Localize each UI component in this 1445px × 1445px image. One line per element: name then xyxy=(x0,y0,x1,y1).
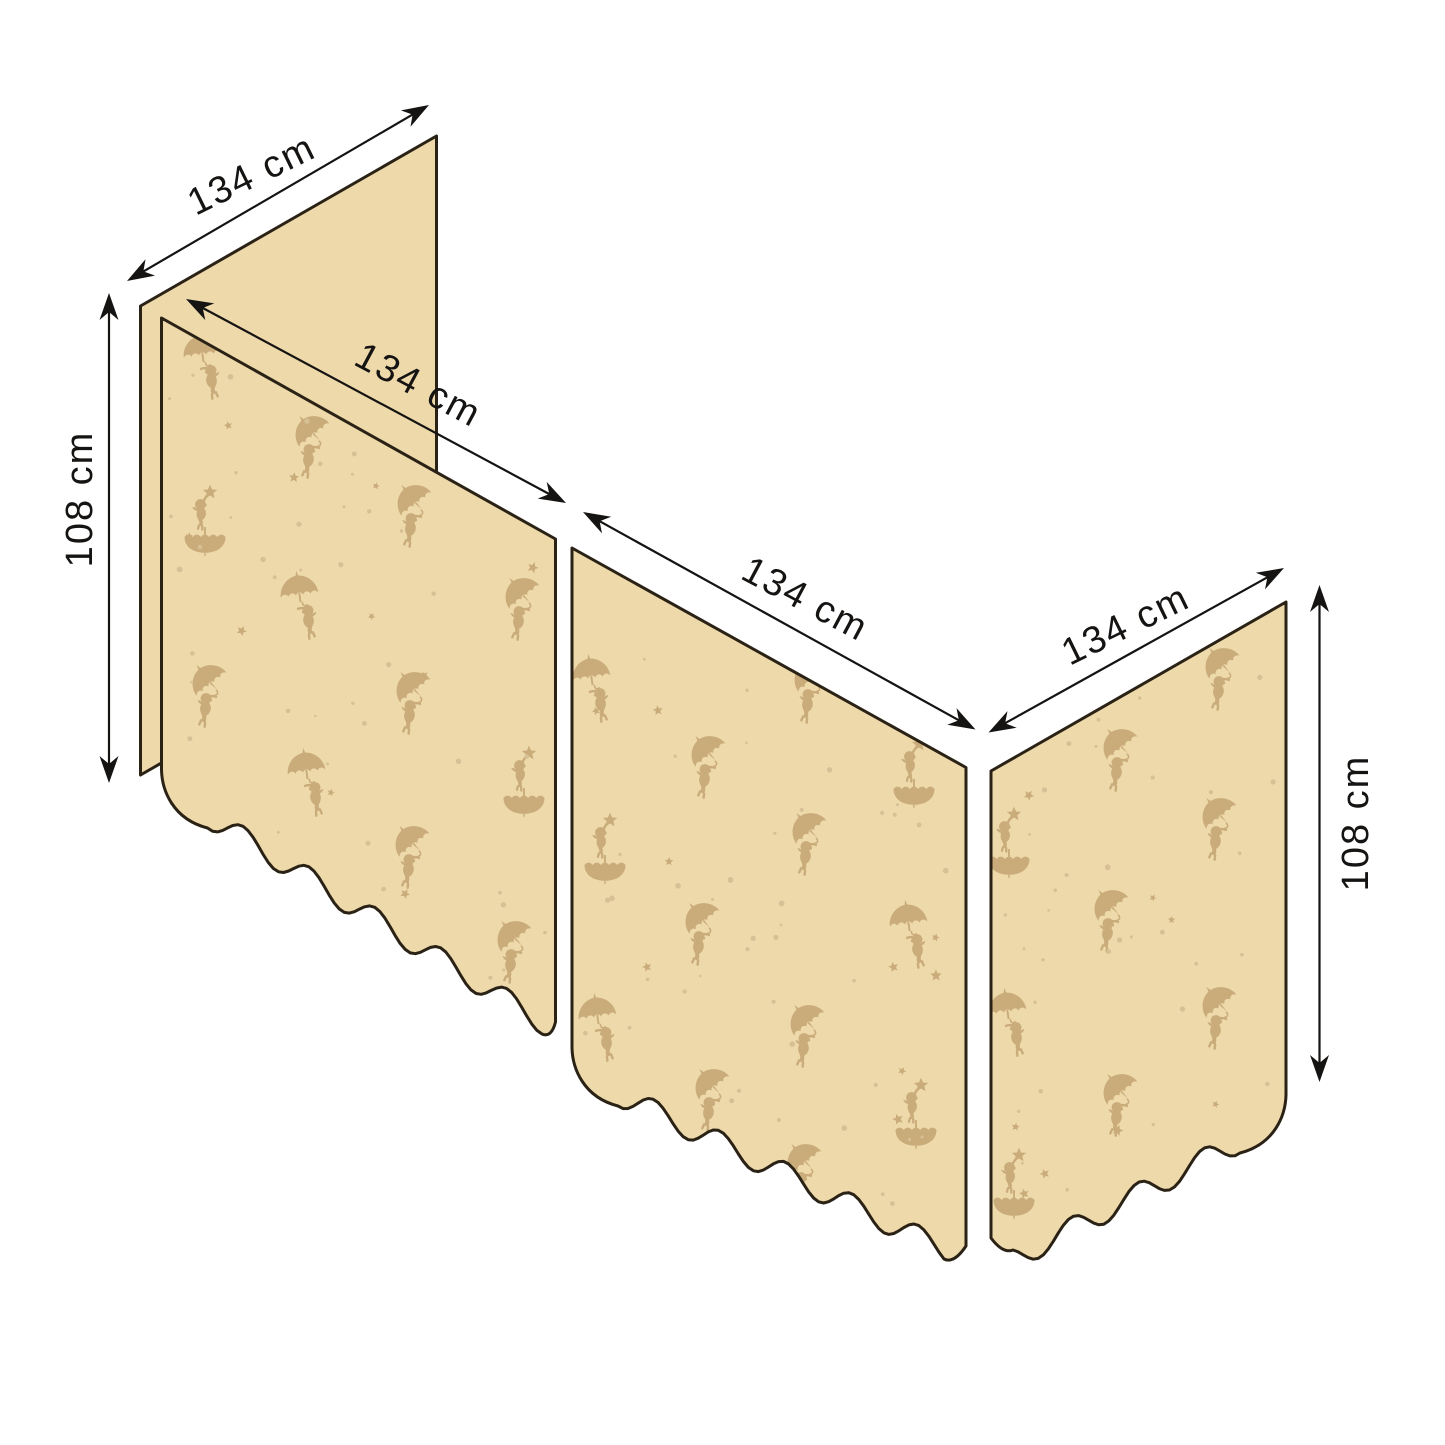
svg-text:108 cm: 108 cm xyxy=(1335,755,1377,892)
svg-text:108 cm: 108 cm xyxy=(59,431,101,568)
